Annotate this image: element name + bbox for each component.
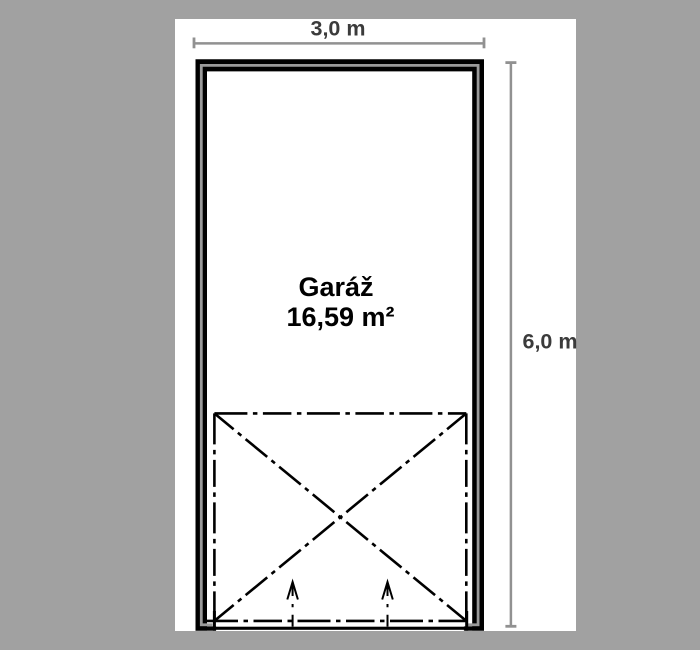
svg-text:Garáž: Garáž [298, 272, 373, 302]
svg-text:6,0 m: 6,0 m [523, 330, 578, 354]
svg-text:16,59 m²: 16,59 m² [286, 302, 394, 332]
svg-text:3,0 m: 3,0 m [311, 16, 366, 40]
